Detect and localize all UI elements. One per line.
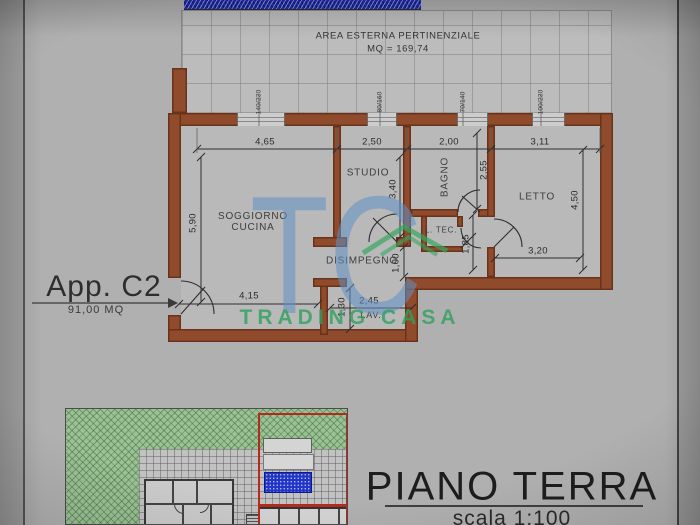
site-building-door-arc (174, 504, 184, 514)
site-building-wall-5 (210, 505, 212, 525)
watermark-company-name: TRADING CASA (240, 306, 461, 330)
plan-scale: scala 1:100 (453, 507, 571, 525)
site-plan (65, 408, 348, 525)
floor-plan-sheet: AREA ESTERNA PERTINENZIALE MQ = 169,74 (0, 0, 700, 525)
site-building-door-arc-2 (200, 504, 209, 513)
site-building-footprint (144, 479, 234, 525)
site-parcel-boundary (258, 413, 348, 525)
site-building-wall-1 (172, 481, 174, 503)
sheet-frame-right (677, 0, 679, 525)
site-building-wall-2 (196, 481, 198, 503)
site-building-wall-3 (146, 503, 232, 505)
plan-title: PIANO TERRA (366, 465, 658, 510)
sheet-frame-left (23, 0, 25, 525)
